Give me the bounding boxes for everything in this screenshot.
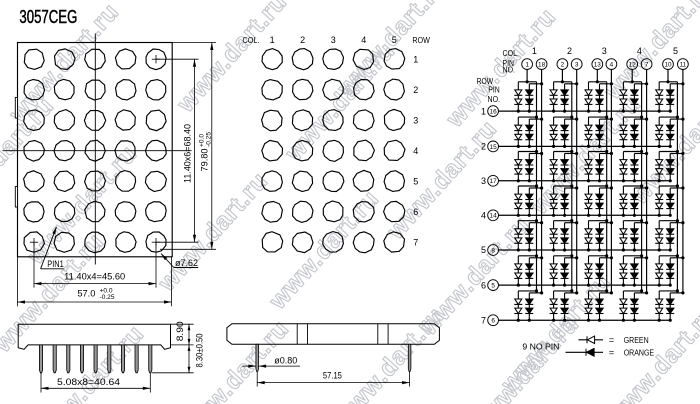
svg-text:7: 7 [481, 315, 486, 325]
svg-text:12: 12 [629, 62, 637, 69]
svg-text:5: 5 [481, 245, 486, 255]
svg-text:4: 4 [637, 46, 642, 56]
svg-text:NO.: NO. [503, 66, 516, 75]
svg-text:6: 6 [481, 280, 486, 290]
svg-text:6: 6 [413, 207, 418, 217]
svg-text:11.40x4=45.60: 11.40x4=45.60 [64, 272, 125, 282]
svg-text:57.0: 57.0 [77, 289, 95, 300]
svg-text:7: 7 [413, 237, 418, 247]
svg-text:PIN: PIN [488, 86, 500, 95]
svg-text:57.15: 57.15 [323, 371, 342, 381]
svg-text:ORANGE: ORANGE [624, 347, 655, 357]
svg-text:2: 2 [567, 46, 572, 56]
svg-text:+0.0: +0.0 [199, 133, 205, 147]
svg-text:=: = [609, 347, 614, 357]
svg-text:5: 5 [673, 46, 678, 56]
svg-text:ø0.80: ø0.80 [274, 356, 297, 366]
svg-text:-0.25: -0.25 [206, 131, 212, 147]
svg-text:16: 16 [490, 109, 498, 116]
svg-text:9 NO PIN: 9 NO PIN [522, 342, 559, 352]
svg-text:5: 5 [392, 35, 397, 45]
svg-text:GREEN: GREEN [624, 335, 649, 345]
svg-text:-0.25: -0.25 [100, 295, 116, 301]
svg-text:7: 7 [645, 62, 649, 69]
svg-text:3: 3 [602, 46, 607, 56]
svg-text:2: 2 [481, 142, 486, 152]
svg-text:5: 5 [491, 283, 495, 290]
svg-text:2: 2 [300, 35, 305, 45]
svg-text:15: 15 [490, 144, 498, 151]
svg-text:3: 3 [481, 176, 486, 186]
svg-text:11.40x6=68.40: 11.40x6=68.40 [183, 124, 193, 183]
svg-text:11: 11 [680, 62, 687, 69]
svg-text:8.90: 8.90 [175, 321, 186, 341]
svg-text:3057CEG: 3057CEG [19, 7, 77, 27]
svg-text:4: 4 [413, 146, 418, 156]
svg-text:5.08x8=40.64: 5.08x8=40.64 [57, 377, 120, 387]
svg-text:NO.: NO. [488, 95, 501, 104]
svg-text:4: 4 [481, 211, 486, 221]
svg-text:1: 1 [525, 62, 529, 69]
svg-text:2: 2 [413, 85, 418, 95]
svg-text:8.30±0.50: 8.30±0.50 [195, 334, 205, 368]
svg-text:3: 3 [575, 62, 579, 69]
svg-text:ø7.62: ø7.62 [175, 258, 198, 268]
svg-text:10: 10 [664, 62, 672, 69]
svg-text:3: 3 [331, 35, 336, 45]
svg-text:3: 3 [413, 115, 418, 125]
svg-text:5: 5 [413, 176, 418, 186]
svg-text:79.80: 79.80 [200, 149, 210, 172]
svg-text:2: 2 [561, 62, 565, 69]
svg-text:PIN1: PIN1 [47, 259, 64, 269]
svg-text:13: 13 [594, 62, 602, 69]
svg-text:18: 18 [538, 62, 546, 69]
svg-text:6: 6 [491, 318, 495, 325]
svg-text:=: = [609, 335, 614, 345]
svg-text:1: 1 [270, 35, 275, 45]
svg-text:4: 4 [361, 35, 366, 45]
svg-text:8: 8 [491, 247, 495, 254]
svg-text:COL.: COL. [243, 35, 260, 45]
svg-text:ROW: ROW [412, 35, 430, 45]
svg-text:1: 1 [413, 54, 418, 64]
svg-text:1: 1 [532, 46, 537, 56]
svg-text:4: 4 [610, 62, 614, 69]
svg-text:+0.0: +0.0 [100, 289, 114, 295]
svg-text:14: 14 [490, 213, 498, 220]
svg-text:17: 17 [490, 178, 498, 185]
svg-text:COL.: COL. [503, 49, 520, 58]
svg-text:1: 1 [481, 106, 486, 116]
